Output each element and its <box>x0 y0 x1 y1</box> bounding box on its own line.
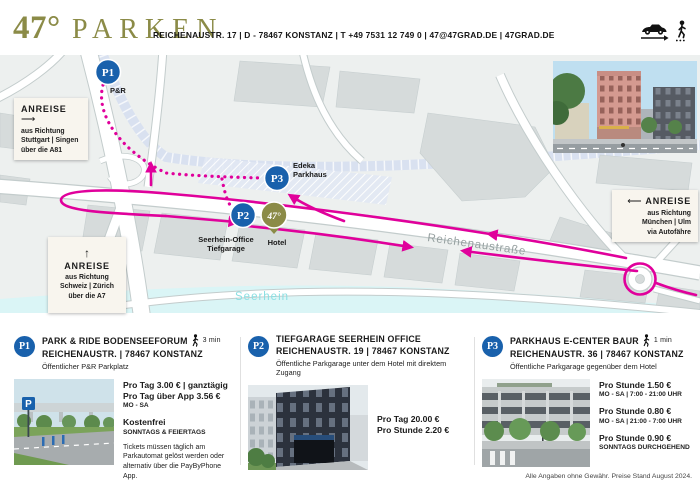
parking-card-p2: P2 TIEFGARAGE SEERHEIN OFFICE REICHENAUS… <box>248 334 466 470</box>
p2-caption-2: Tiefgarage <box>207 244 245 253</box>
anreise-box-muenchen: ⟵ ANREISE aus Richtung München | Ulm via… <box>612 190 698 242</box>
header-contact: REICHENAUSTR. 17 | D - 78467 KONSTANZ | … <box>153 30 555 40</box>
price-validity: MO - SA | 7:00 - 21:00 UHR <box>599 391 690 398</box>
svg-text:P: P <box>25 399 32 410</box>
price-line: Pro Stunde 0.90 € <box>599 433 690 443</box>
hotel-pin-label: 47° <box>266 211 281 222</box>
card-subtitle: Öffentlicher P&R Parkplatz <box>42 362 221 371</box>
card-title-text: PARK & RIDE BODENSEEFORUM <box>42 336 188 346</box>
photo-p1-parking-lot: P <box>14 379 114 465</box>
price-list: Pro Tag 3.00 € | ganztägig Pro Tag über … <box>123 379 236 482</box>
arrow-left-icon: ⟵ <box>627 196 642 207</box>
card-subtitle: Öffentliche Parkgarage unter dem Hotel m… <box>276 359 466 377</box>
anreise-line: aus Richtung <box>619 210 691 217</box>
p2-photo-graphic <box>248 385 368 470</box>
water-label: Seerhein <box>235 291 289 303</box>
p2-badge: P2 <box>248 336 269 357</box>
marker-p1-label: P1 <box>102 67 114 79</box>
price-validity: SONNTAGS DURCHGEHEND <box>599 444 690 451</box>
price-list: Pro Tag 20.00 € Pro Stunde 2.20 € <box>377 413 449 470</box>
anreise-line: über die A7 <box>55 293 119 300</box>
anreise-line: München | Ulm <box>619 219 691 226</box>
card-title: PARKHAUS E-CENTER BAUR 1 min <box>510 334 684 347</box>
card-body: Pro Tag 20.00 € Pro Stunde 2.20 € <box>248 385 466 470</box>
anreise-title: ANREISE <box>55 261 119 271</box>
p1-photo-graphic: P <box>14 379 114 465</box>
anreise-title-text: ANREISE <box>645 196 691 206</box>
photo-p3-parkhaus <box>482 379 590 467</box>
p3-caption-2: Parkhaus <box>293 170 327 179</box>
anreise-box-stuttgart: ANREISE ⟶ aus Richtung Stuttgart | Singe… <box>14 98 88 160</box>
p1-badge: P1 <box>14 336 35 357</box>
anreise-line: via Autofähre <box>619 229 691 236</box>
card-header-text: PARKHAUS E-CENTER BAUR 1 min REICHENAUST… <box>510 334 684 371</box>
card-header: P3 PARKHAUS E-CENTER BAUR 1 min REICHENA… <box>482 334 698 371</box>
pedestrian-icon <box>642 334 651 347</box>
anreise-line: Schweiz | Zürich <box>55 283 119 290</box>
price-line: Pro Tag 20.00 € <box>377 414 449 424</box>
anreise-line: über die A81 <box>21 147 81 154</box>
roundabout-island <box>636 275 645 284</box>
price-validity: MO - SA <box>123 402 236 409</box>
parking-flyer: 47° PARKEN REICHENAUSTR. 17 | D - 78467 … <box>0 0 700 500</box>
anreise-title: ANREISE ⟶ <box>21 104 81 125</box>
card-address: REICHENAUSTR. 36 | 78467 KONSTANZ <box>510 349 684 359</box>
card-header: P1 PARK & RIDE BODENSEEFORUM 3 min REICH… <box>14 334 236 371</box>
arrow-up-icon: ↑ <box>55 246 119 260</box>
hotel-caption: Hotel <box>268 238 287 247</box>
logo-47: 47° <box>13 10 61 47</box>
price-line: Pro Tag 3.00 € | ganztägig <box>123 380 236 390</box>
header: 47° PARKEN REICHENAUSTR. 17 | D - 78467 … <box>0 0 700 55</box>
ticket-note: Tickets müssen täglich am Parkautomat ge… <box>123 443 236 482</box>
anreise-title-text: ANREISE <box>21 104 67 114</box>
card-title: PARK & RIDE BODENSEEFORUM 3 min <box>42 334 221 347</box>
price-line: Pro Stunde 0.80 € <box>599 406 690 416</box>
card-title: TIEFGARAGE SEERHEIN OFFICE <box>276 334 466 344</box>
anreise-box-schweiz: ↑ ANREISE aus Richtung Schweiz | Zürich … <box>48 237 126 313</box>
price-validity: SONNTAGS & FEIERTAGS <box>123 429 236 436</box>
p3-photo-graphic <box>482 379 590 467</box>
p2-caption-1: Seerhein-Office <box>198 235 253 244</box>
price-line: Pro Stunde 2.20 € <box>377 425 449 435</box>
disclaimer: Alle Angaben ohne Gewähr. Preise Stand A… <box>525 473 692 480</box>
card-title-text: PARKHAUS E-CENTER BAUR <box>510 336 639 346</box>
parking-info-section: P1 PARK & RIDE BODENSEEFORUM 3 min REICH… <box>0 334 700 470</box>
parking-card-p1: P1 PARK & RIDE BODENSEEFORUM 3 min REICH… <box>14 334 236 482</box>
p3-caption-1: Edeka <box>293 161 316 170</box>
marker-p2-label: P2 <box>237 210 250 222</box>
price-line: Pro Tag über App 3.56 € <box>123 391 236 401</box>
p1-caption: P&R <box>110 86 126 95</box>
arrow-right-icon: ⟶ <box>21 114 36 125</box>
card-body: Pro Stunde 1.50 € MO - SA | 7:00 - 21:00… <box>482 379 698 467</box>
card-header-text: PARK & RIDE BODENSEEFORUM 3 min REICHENA… <box>42 334 221 371</box>
parking-card-p3: P3 PARKHAUS E-CENTER BAUR 1 min REICHENA… <box>482 334 698 467</box>
card-subtitle: Öffentliche Parkgarage gegenüber dem Hot… <box>510 362 684 371</box>
route-legend <box>639 20 688 42</box>
pedestrian-icon <box>191 334 200 347</box>
marker-p3-label: P3 <box>271 173 284 185</box>
card-divider <box>474 337 475 465</box>
card-divider <box>240 337 241 465</box>
car-icon <box>639 20 669 42</box>
walk-time: 1 min <box>654 337 672 344</box>
anreise-line: aus Richtung <box>21 128 81 135</box>
price-validity: MO - SA | 21:00 - 7:00 UHR <box>599 418 690 425</box>
card-address: REICHENAUSTR. 19 | 78467 KONSTANZ <box>276 346 466 356</box>
price-line: Pro Stunde 1.50 € <box>599 380 690 390</box>
anreise-line: Stuttgart | Singen <box>21 137 81 144</box>
walk-time: 3 min <box>203 337 221 344</box>
card-header-text: TIEFGARAGE SEERHEIN OFFICE REICHENAUSTR.… <box>276 334 466 377</box>
p3-badge: P3 <box>482 336 503 357</box>
card-title-text: TIEFGARAGE SEERHEIN OFFICE <box>276 334 421 344</box>
card-body: P Pro Tag 3.00 € | ganztägig Pro Tag übe… <box>14 379 236 482</box>
city-map: Reichenaustraße Seerhein <box>0 55 700 313</box>
pedestrian-icon <box>676 20 688 42</box>
price-line: Kostenfrei <box>123 417 236 427</box>
price-list: Pro Stunde 1.50 € MO - SA | 7:00 - 21:00… <box>599 379 690 467</box>
photo-p2-garage <box>248 385 368 470</box>
hotel-photo-graphic <box>553 61 697 153</box>
card-address: REICHENAUSTR. | 78467 KONSTANZ <box>42 349 221 359</box>
anreise-title: ⟵ ANREISE <box>619 196 691 207</box>
anreise-line: aus Richtung <box>55 274 119 281</box>
hotel-photo <box>553 61 697 153</box>
card-header: P2 TIEFGARAGE SEERHEIN OFFICE REICHENAUS… <box>248 334 466 377</box>
